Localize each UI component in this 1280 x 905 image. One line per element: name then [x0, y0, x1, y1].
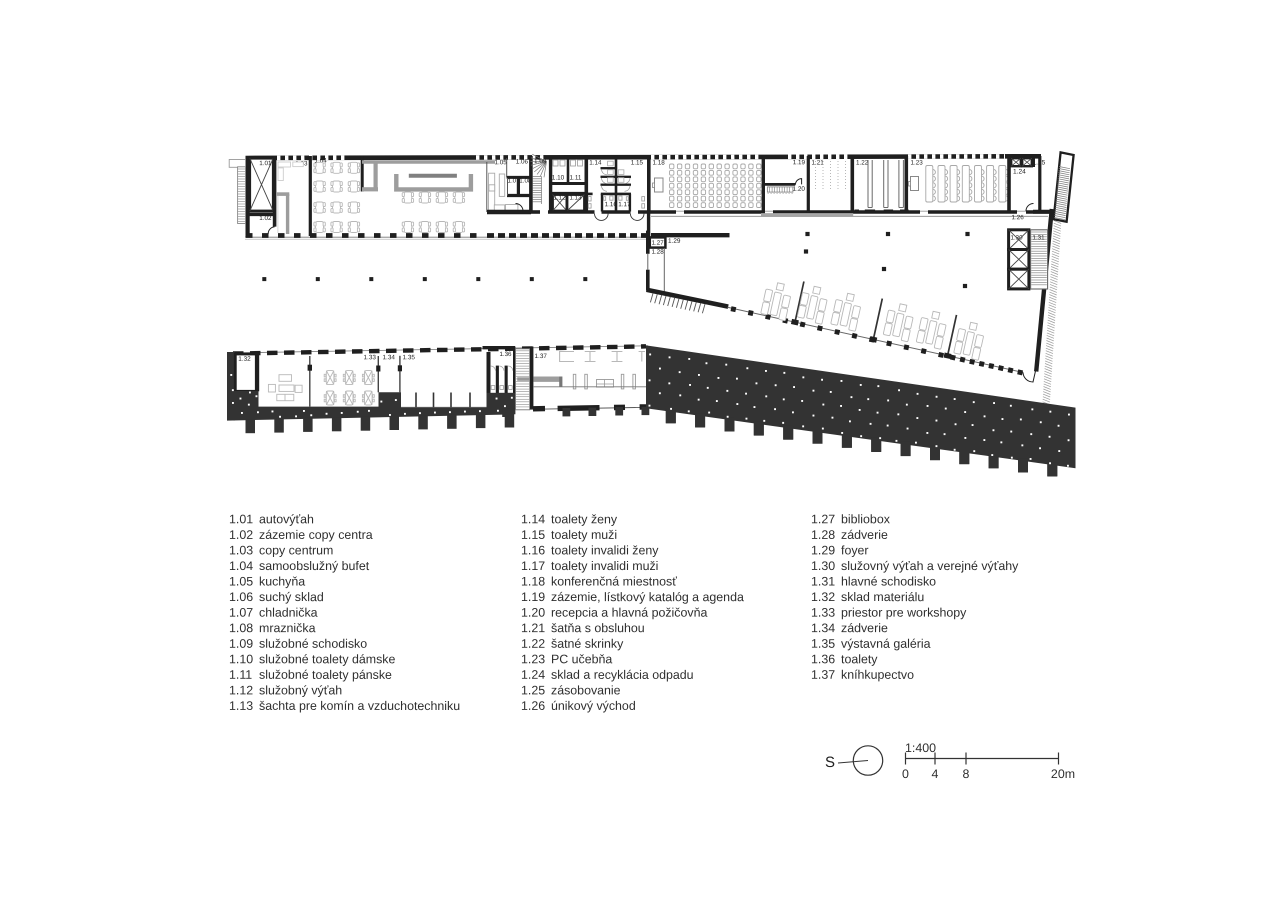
svg-text:0: 0 [902, 767, 909, 781]
svg-text:4: 4 [932, 767, 939, 781]
svg-text:S: S [825, 754, 835, 771]
svg-text:1:400: 1:400 [905, 741, 936, 755]
svg-text:20m: 20m [1051, 767, 1075, 781]
svg-text:8: 8 [963, 767, 970, 781]
